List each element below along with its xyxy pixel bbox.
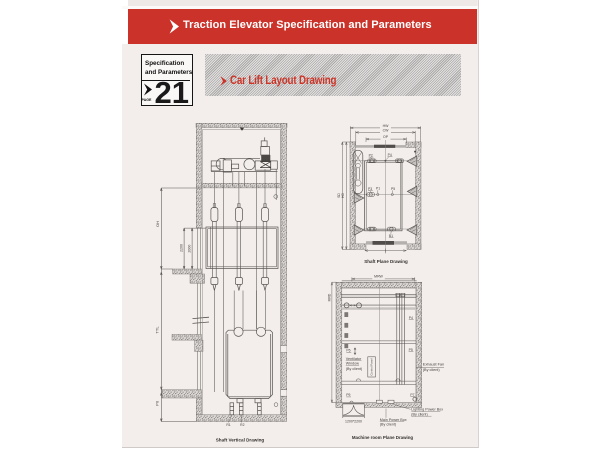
svg-text:MRD: MRD [327, 293, 331, 301]
svg-text:P2: P2 [369, 153, 373, 157]
svg-text:CW: CW [383, 128, 390, 132]
svg-text:2000: 2000 [188, 245, 192, 253]
svg-text:P5: P5 [391, 187, 395, 191]
svg-text:P6: P6 [346, 349, 350, 353]
svg-text:(By client): (By client) [380, 422, 396, 426]
svg-text:Shaft Plane Drawing: Shaft Plane Drawing [364, 259, 408, 264]
svg-text:HD: HD [341, 193, 345, 198]
svg-text:Machine room Plane Drawing: Machine room Plane Drawing [352, 435, 414, 440]
svg-text:P1: P1 [376, 187, 380, 191]
svg-text:P4: P4 [409, 316, 413, 320]
svg-text:2200: 2200 [179, 244, 183, 252]
svg-text:TTL: TTL [155, 326, 160, 334]
svg-text:Exhaust Fan: Exhaust Fan [423, 363, 444, 367]
svg-text:MRW: MRW [374, 275, 383, 279]
svg-text:Main Power Box: Main Power Box [380, 418, 407, 422]
svg-text:(By client): (By client) [346, 367, 362, 371]
svg-text:OP: OP [383, 135, 389, 139]
svg-text:OH: OH [155, 221, 160, 227]
svg-text:Window: Window [346, 362, 359, 366]
svg-text:Ventilator: Ventilator [346, 357, 362, 361]
svg-text:(By client): (By client) [423, 368, 441, 372]
svg-text:P4: P4 [388, 153, 392, 157]
svg-text:Control Panel: Control Panel [369, 358, 373, 375]
svg-text:(By client): (By client) [411, 412, 427, 416]
svg-text:Lighting Power Box: Lighting Power Box [411, 408, 443, 412]
svg-text:R2: R2 [240, 423, 244, 427]
svg-text:Shaft Vertical Drawing: Shaft Vertical Drawing [216, 438, 265, 443]
svg-text:1200*2200: 1200*2200 [345, 420, 362, 424]
svg-text:P7: P7 [410, 393, 414, 397]
svg-text:B1: B1 [389, 234, 393, 238]
svg-text:P5: P5 [409, 348, 413, 352]
svg-text:HW: HW [383, 124, 390, 128]
svg-text:R1: R1 [226, 423, 230, 427]
svg-text:Pit: Pit [155, 400, 160, 406]
svg-text:P3: P3 [368, 187, 372, 191]
svg-text:P9: P9 [346, 393, 350, 397]
